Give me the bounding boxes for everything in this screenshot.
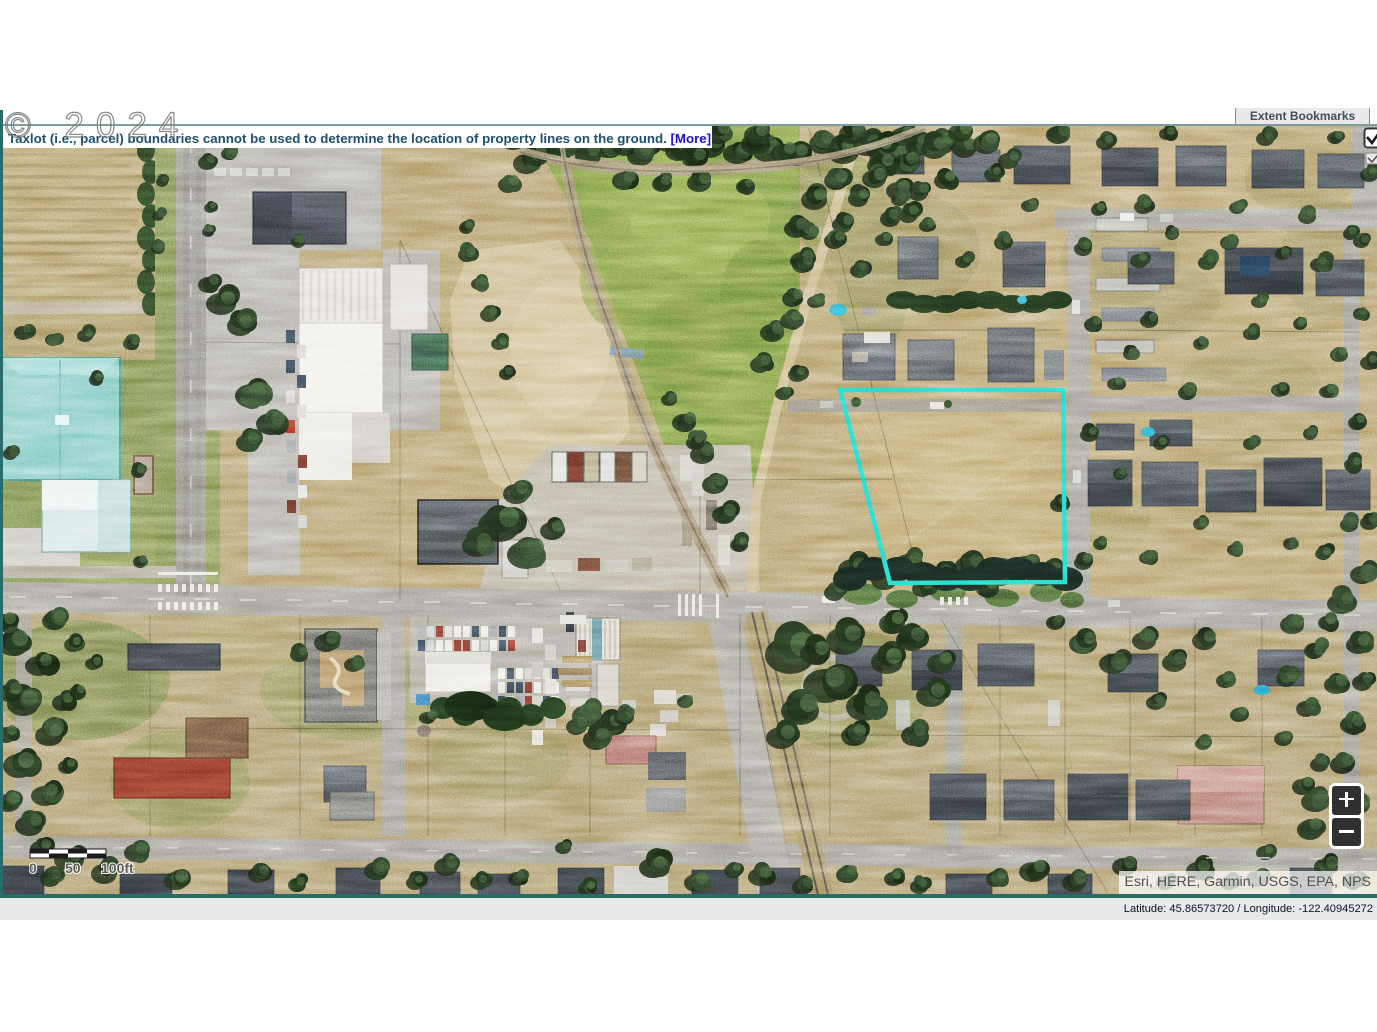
svg-text:50: 50 [65,860,81,876]
svg-text:0: 0 [29,860,37,876]
svg-text:100ft: 100ft [101,860,134,876]
